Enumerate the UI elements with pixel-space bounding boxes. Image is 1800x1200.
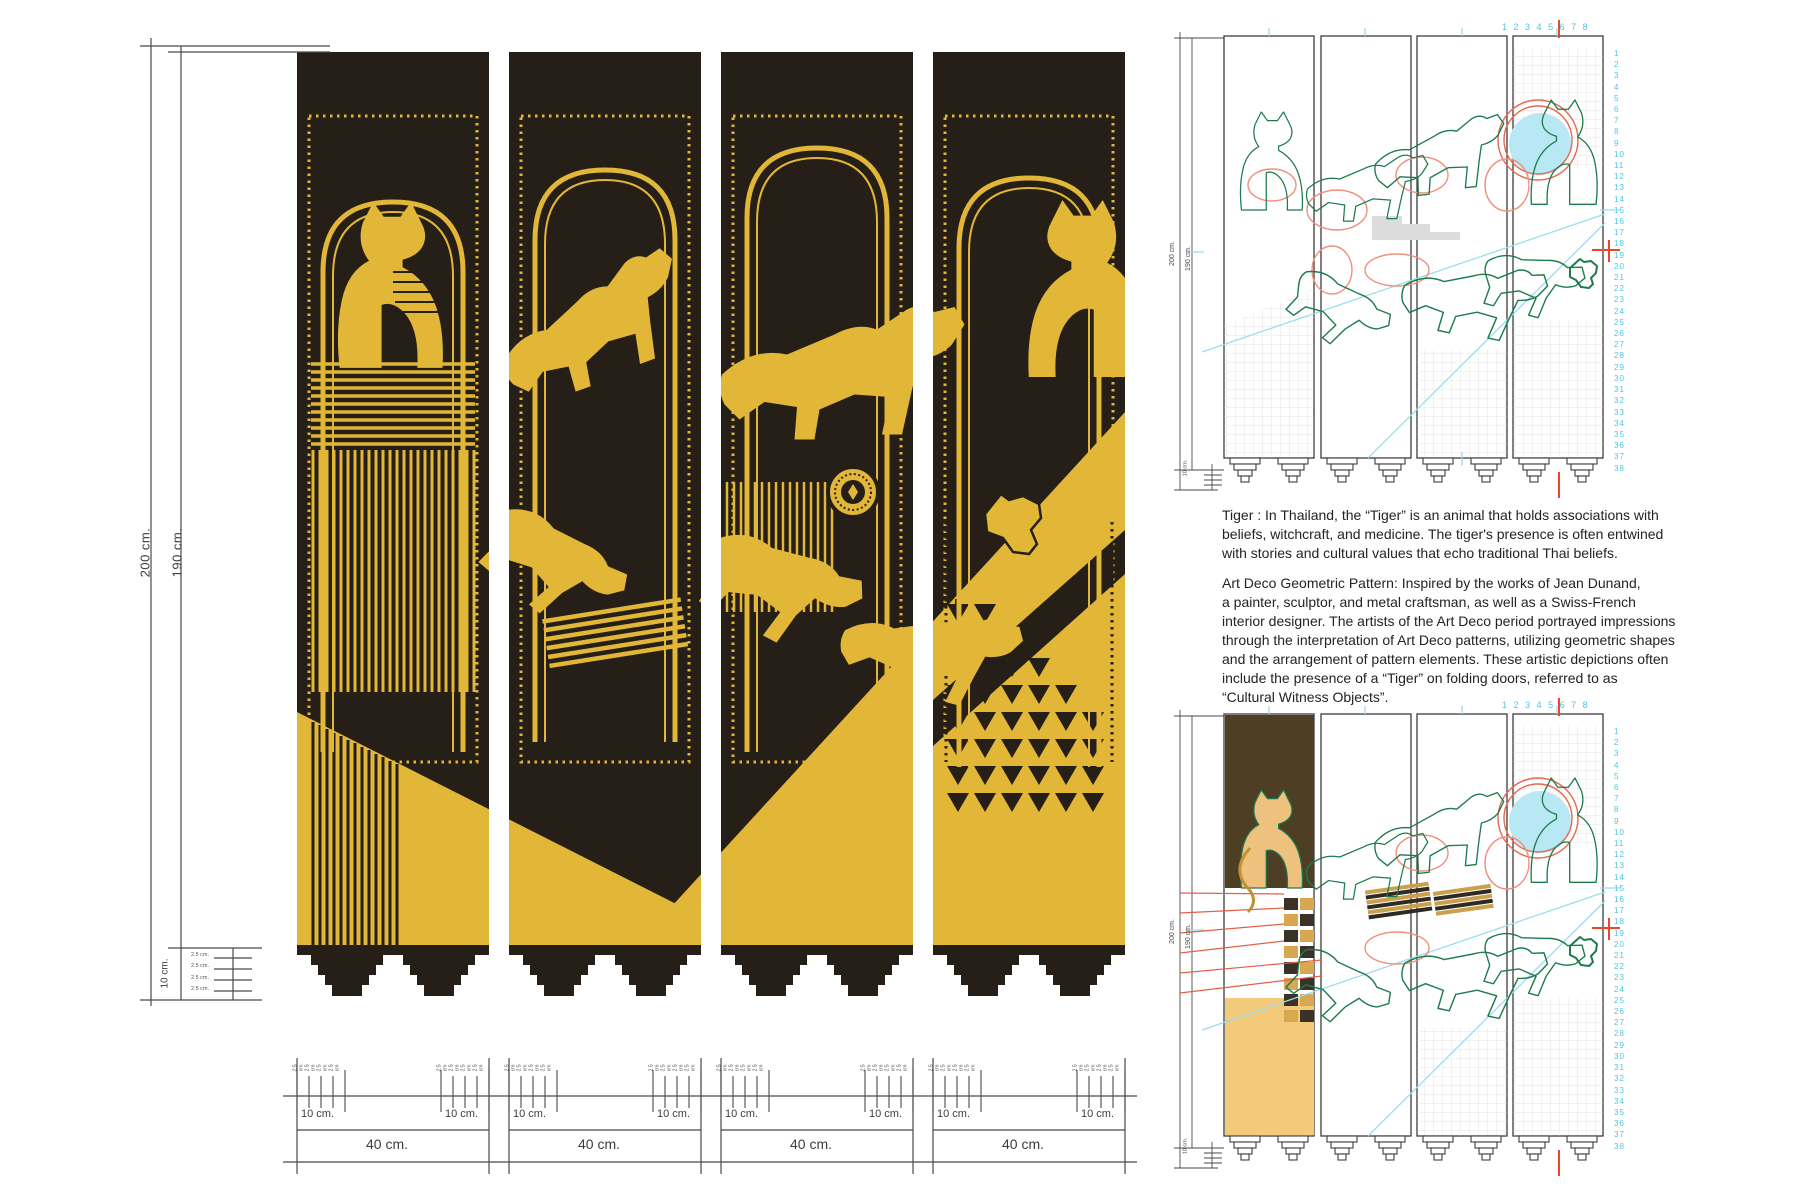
tick-label: 2.5 cm (1108, 1063, 1130, 1072)
side-number: 20 (1614, 261, 1625, 272)
tick-label: 2.5 cm (328, 1063, 350, 1072)
side-number: 19 (1614, 928, 1625, 939)
side-number: 15 (1614, 205, 1625, 216)
dim-edge-width-label: 10 cm. (657, 1108, 690, 1120)
foot-step-label: 2.5 cm. (191, 963, 209, 969)
side-number: 35 (1614, 429, 1625, 440)
side-number: 32 (1614, 395, 1625, 406)
dim-edge-width-label: 10 cm. (1081, 1108, 1114, 1120)
sketch-dim-lines (1174, 32, 1224, 490)
side-number: 36 (1614, 440, 1625, 451)
side-number: 28 (1614, 350, 1625, 361)
ruler-number: 1 (1502, 700, 1507, 710)
side-number: 5 (1614, 93, 1625, 104)
dim-edge-width-label: 10 cm. (869, 1108, 902, 1120)
side-number: 5 (1614, 771, 1625, 782)
side-number: 6 (1614, 104, 1625, 115)
dim-art-height-label: 190 cm. (169, 528, 184, 578)
dim-panel-width-label: 40 cm. (366, 1136, 408, 1152)
side-number: 25 (1614, 317, 1625, 328)
side-number: 38 (1614, 1141, 1625, 1152)
sketch-top (1172, 20, 1642, 498)
side-number: 26 (1614, 1006, 1625, 1017)
ruler-number: 7 (1571, 22, 1576, 32)
text-line: with stories and cultural values that ec… (1222, 544, 1742, 563)
sketch-bottom (1172, 698, 1642, 1176)
dim-edge-width-label: 10 cm. (725, 1108, 758, 1120)
dim-panel-width-label: 40 cm. (1002, 1136, 1044, 1152)
tick-labels-group: 2.5 cm2.5 cm2.5 cm2.5 cm (655, 1050, 700, 1072)
design-sheet-page: { "title": "Art Deco tiger folding scree… (0, 0, 1800, 1200)
dim-edge-width-label: 10 cm. (937, 1108, 970, 1120)
side-number: 24 (1614, 984, 1625, 995)
side-number: 31 (1614, 1062, 1625, 1073)
side-number: 31 (1614, 384, 1625, 395)
tick-labels-group: 2.5 cm2.5 cm2.5 cm2.5 cm (935, 1050, 980, 1072)
foot-step-label: 2.5 cm. (191, 975, 209, 981)
side-number: 21 (1614, 272, 1625, 283)
side-number: 11 (1614, 838, 1625, 849)
ruler-number: 4 (1537, 700, 1542, 710)
side-number: 16 (1614, 894, 1625, 905)
side-number: 38 (1614, 463, 1625, 474)
tick-label: 2.5 cm (752, 1063, 774, 1072)
ruler-number: 3 (1525, 700, 1530, 710)
tick-label: 2.5 cm (896, 1063, 918, 1072)
side-number: 35 (1614, 1107, 1625, 1118)
side-number: 3 (1614, 70, 1625, 81)
description-text: Tiger : In Thailand, the “Tiger” is an a… (1222, 506, 1742, 707)
side-number: 8 (1614, 804, 1625, 815)
dim-total-height-label: 200 cm. (137, 528, 152, 578)
side-number: 18 (1614, 238, 1625, 249)
side-number: 28 (1614, 1028, 1625, 1039)
side-number: 11 (1614, 160, 1625, 171)
side-number: 20 (1614, 939, 1625, 950)
ruler-number: 7 (1571, 700, 1576, 710)
text-line: interior designer. The artists of the Ar… (1222, 612, 1742, 631)
tick-labels-group: 2.5 cm2.5 cm2.5 cm2.5 cm (723, 1050, 768, 1072)
tick-labels-group: 2.5 cm2.5 cm2.5 cm2.5 cm (511, 1050, 556, 1072)
side-number: 1 (1614, 48, 1625, 59)
side-number: 10 (1614, 149, 1625, 160)
side-number: 19 (1614, 250, 1625, 261)
side-number: 12 (1614, 849, 1625, 860)
side-number: 13 (1614, 860, 1625, 871)
dim-panel-width-label: 40 cm. (790, 1136, 832, 1152)
sketch-dim-height-label: 200 cm. (1169, 241, 1176, 266)
ruler-number: 2 (1514, 22, 1519, 32)
tick-labels-group: 2.5 cm2.5 cm2.5 cm2.5 cm (867, 1050, 912, 1072)
side-number: 24 (1614, 306, 1625, 317)
sketch-side-numbers: 1234567891011121314151617181920212223242… (1614, 726, 1625, 1152)
ruler-number: 1 (1502, 22, 1507, 32)
side-number: 34 (1614, 1096, 1625, 1107)
ruler-number: 2 (1514, 700, 1519, 710)
side-number: 4 (1614, 760, 1625, 771)
dim-panel-width-label: 40 cm. (578, 1136, 620, 1152)
side-number: 32 (1614, 1073, 1625, 1084)
side-number: 2 (1614, 737, 1625, 748)
dim-edge-width-label: 10 cm. (445, 1108, 478, 1120)
text-line: include the presence of a “Tiger” on fol… (1222, 669, 1742, 688)
text-line: Art Deco Geometric Pattern: Inspired by … (1222, 574, 1742, 593)
ruler-number: 3 (1525, 22, 1530, 32)
text-line: beliefs, witchcraft, and medicine. The t… (1222, 525, 1742, 544)
dim-foot-height-label: 10 cm. (160, 958, 171, 988)
dim-edge-width-label: 10 cm. (513, 1108, 546, 1120)
ruler-number: 8 (1583, 22, 1588, 32)
side-number: 15 (1614, 883, 1625, 894)
side-number: 14 (1614, 194, 1625, 205)
ruler-number: 5 (1548, 22, 1553, 32)
sketch-dim-foot-label: 10 cm. (1182, 1138, 1188, 1155)
text-line: and the arrangement of pattern elements.… (1222, 650, 1742, 669)
sketch-feet (1230, 458, 1597, 482)
side-number: 30 (1614, 373, 1625, 384)
ruler-number: 8 (1583, 700, 1588, 710)
side-number: 17 (1614, 905, 1625, 916)
side-number: 17 (1614, 227, 1625, 238)
sketch-dim-height-label: 200 cm. (1169, 919, 1176, 944)
side-number: 1 (1614, 726, 1625, 737)
side-number: 25 (1614, 995, 1625, 1006)
sketch-dim-art-height-label: 190 cm. (1185, 246, 1192, 271)
side-number: 7 (1614, 115, 1625, 126)
side-number: 22 (1614, 961, 1625, 972)
side-number: 4 (1614, 82, 1625, 93)
dim-edge-width-label: 10 cm. (301, 1108, 334, 1120)
side-number: 33 (1614, 407, 1625, 418)
side-number: 37 (1614, 451, 1625, 462)
side-number: 34 (1614, 418, 1625, 429)
side-number: 29 (1614, 362, 1625, 373)
side-number: 23 (1614, 972, 1625, 983)
foot-step-label: 2.5 cm. (191, 986, 209, 992)
tick-labels-group: 2.5 cm2.5 cm2.5 cm2.5 cm (299, 1050, 344, 1072)
side-number: 22 (1614, 283, 1625, 294)
ruler-number: 6 (1560, 22, 1565, 32)
side-number: 9 (1614, 816, 1625, 827)
side-number: 14 (1614, 872, 1625, 883)
sketch-dim-lines (1174, 710, 1224, 1168)
paragraph-artdeco: Art Deco Geometric Pattern: Inspired by … (1222, 574, 1742, 707)
text-line: Tiger : In Thailand, the “Tiger” is an a… (1222, 506, 1742, 525)
foot-step-label: 2.5 cm. (191, 952, 209, 958)
tick-label: 2.5 cm (964, 1063, 986, 1072)
text-line: through the interpretation of Art Deco p… (1222, 631, 1742, 650)
side-number: 27 (1614, 1017, 1625, 1028)
tick-labels-group: 2.5 cm2.5 cm2.5 cm2.5 cm (1079, 1050, 1124, 1072)
side-number: 8 (1614, 126, 1625, 137)
side-number: 18 (1614, 916, 1625, 927)
sketch-side-numbers: 1234567891011121314151617181920212223242… (1614, 48, 1625, 474)
side-number: 36 (1614, 1118, 1625, 1129)
ruler-number: 4 (1537, 22, 1542, 32)
side-number: 3 (1614, 748, 1625, 759)
tick-label: 2.5 cm (472, 1063, 494, 1072)
side-number: 33 (1614, 1085, 1625, 1096)
paragraph-tiger: Tiger : In Thailand, the “Tiger” is an a… (1222, 506, 1742, 563)
foot-step-labels: 2.5 cm.2.5 cm.2.5 cm.2.5 cm. (191, 952, 209, 992)
side-number: 26 (1614, 328, 1625, 339)
sketch-feet (1230, 1136, 1597, 1160)
side-number: 12 (1614, 171, 1625, 182)
sketch-dim-art-height-label: 190 cm. (1185, 924, 1192, 949)
text-line: a painter, sculptor, and metal craftsman… (1222, 593, 1742, 612)
side-number: 7 (1614, 793, 1625, 804)
side-number: 21 (1614, 950, 1625, 961)
tick-labels-group: 2.5 cm2.5 cm2.5 cm2.5 cm (443, 1050, 488, 1072)
side-number: 16 (1614, 216, 1625, 227)
sketch-top-ruler: 12345678 (1502, 22, 1588, 32)
ruler-number: 5 (1548, 700, 1553, 710)
side-number: 29 (1614, 1040, 1625, 1051)
halo-circle (1509, 791, 1571, 853)
side-number: 30 (1614, 1051, 1625, 1062)
side-number: 10 (1614, 827, 1625, 838)
side-number: 37 (1614, 1129, 1625, 1140)
tick-label: 2.5 cm (684, 1063, 706, 1072)
side-number: 23 (1614, 294, 1625, 305)
sketch-dim-foot-label: 10 cm. (1182, 460, 1188, 477)
tick-label: 2.5 cm (540, 1063, 562, 1072)
side-number: 27 (1614, 339, 1625, 350)
ruler-number: 6 (1560, 700, 1565, 710)
side-number: 13 (1614, 182, 1625, 193)
side-number: 9 (1614, 138, 1625, 149)
side-number: 6 (1614, 782, 1625, 793)
sketch-top-ruler: 12345678 (1502, 700, 1588, 710)
halo-circle (1509, 113, 1571, 175)
side-number: 2 (1614, 59, 1625, 70)
